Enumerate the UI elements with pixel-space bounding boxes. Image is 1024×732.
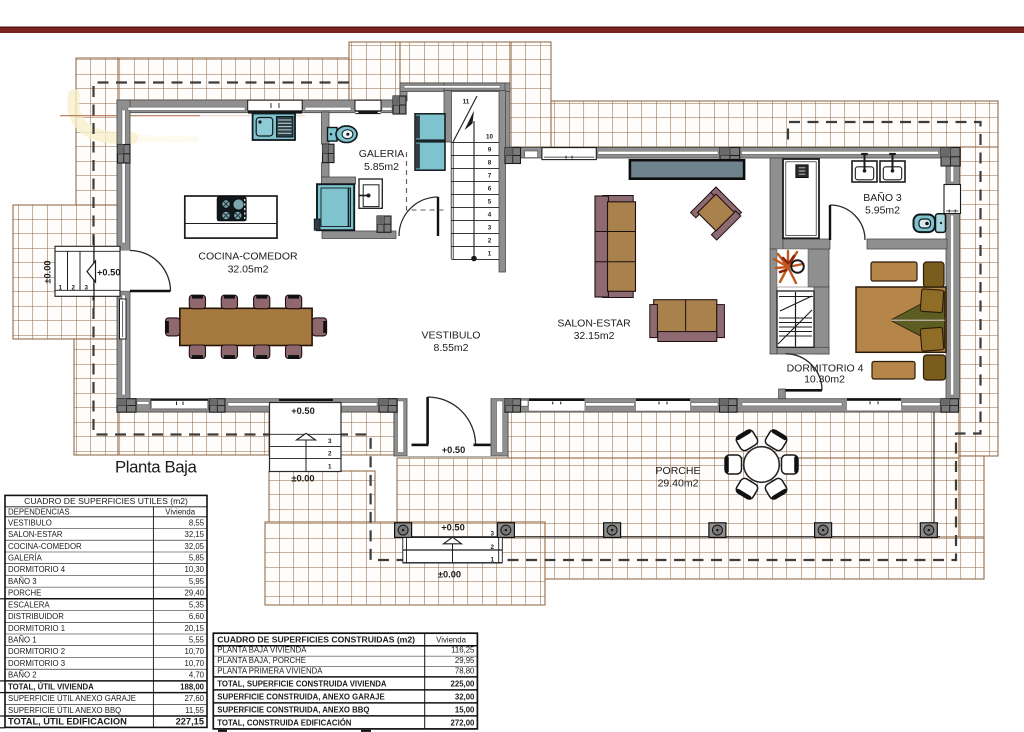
svg-text:7: 7: [488, 173, 492, 180]
svg-text:6,60: 6,60: [189, 612, 205, 621]
svg-text:COCINA-COMEDOR: COCINA-COMEDOR: [8, 542, 82, 551]
svg-text:78,80: 78,80: [455, 667, 475, 676]
svg-text:32,00: 32,00: [455, 693, 475, 702]
svg-text:20,15: 20,15: [184, 624, 204, 633]
svg-text:CUADRO DE SUPERFICIES CONSTRUI: CUADRO DE SUPERFICIES CONSTRUIDAS (m2): [217, 634, 415, 644]
svg-text:2: 2: [491, 544, 495, 551]
svg-text:6: 6: [488, 186, 492, 193]
svg-text:PLANTA BAJA, PORCHE: PLANTA BAJA, PORCHE: [217, 656, 306, 665]
svg-text:TOTAL, CONSTRUIDA EDIFICACIÓN: TOTAL, CONSTRUIDA EDIFICACIÓN: [217, 719, 351, 728]
svg-text:5.95m2: 5.95m2: [865, 205, 900, 217]
svg-text:8.55m2: 8.55m2: [433, 342, 468, 354]
svg-text:DORMITORIO 3: DORMITORIO 3: [8, 659, 65, 668]
svg-text:27,60: 27,60: [184, 694, 204, 703]
svg-text:SUPERFICIE CONSTRUIDA, ANEXO B: SUPERFICIE CONSTRUIDA, ANEXO BBQ: [217, 706, 369, 715]
svg-text:227,15: 227,15: [176, 717, 204, 727]
svg-text:4,70: 4,70: [189, 671, 205, 680]
svg-text:5.85m2: 5.85m2: [364, 161, 399, 173]
svg-text:±0.00: ±0.00: [43, 260, 53, 283]
svg-text:TOTAL, SUPERFICIE CONSTRUIDA V: TOTAL, SUPERFICIE CONSTRUIDA VIVIENDA: [217, 680, 387, 689]
svg-text:5: 5: [488, 199, 492, 206]
svg-text:TOTAL, ÚTIL VIVIENDA: TOTAL, ÚTIL VIVIENDA: [8, 682, 94, 691]
svg-text:32,15: 32,15: [184, 530, 204, 539]
svg-text:+0.50: +0.50: [291, 406, 315, 416]
svg-text:10: 10: [486, 134, 494, 141]
svg-text:3: 3: [488, 225, 492, 232]
svg-text:1: 1: [328, 464, 332, 471]
svg-text:PLANTA PRIMERA VIVIENDA: PLANTA PRIMERA VIVIENDA: [217, 667, 323, 676]
svg-text:Vivienda: Vivienda: [165, 507, 195, 516]
svg-text:SALON-ESTAR: SALON-ESTAR: [557, 318, 631, 330]
svg-text:2: 2: [72, 285, 76, 292]
svg-text:10,30: 10,30: [184, 565, 204, 574]
svg-text:272,00: 272,00: [451, 719, 476, 728]
svg-text:PORCHE: PORCHE: [8, 589, 41, 598]
svg-text:188,00: 188,00: [180, 682, 205, 691]
svg-text:ESCALERA: ESCALERA: [8, 600, 50, 609]
svg-text:PORCHE: PORCHE: [656, 465, 701, 477]
svg-text:10.30m2: 10.30m2: [804, 374, 845, 386]
svg-text:4: 4: [488, 212, 492, 219]
svg-text:3: 3: [85, 285, 89, 292]
svg-text:VESTIBULO: VESTIBULO: [8, 518, 52, 527]
svg-text:8,55: 8,55: [189, 518, 205, 527]
svg-text:225,00: 225,00: [451, 680, 476, 689]
svg-text:GALERIA: GALERIA: [359, 148, 405, 160]
svg-text:116,25: 116,25: [451, 646, 475, 655]
svg-text:29.40m2: 29.40m2: [658, 478, 699, 490]
svg-text:10,70: 10,70: [184, 659, 204, 668]
svg-text:2: 2: [328, 451, 332, 458]
svg-text:9: 9: [488, 147, 492, 154]
svg-text:Vivienda: Vivienda: [436, 635, 466, 644]
svg-text:BAÑO 2: BAÑO 2: [8, 671, 37, 680]
svg-text:29,95: 29,95: [455, 656, 475, 665]
svg-text:DISTRIBUIDOR: DISTRIBUIDOR: [8, 612, 64, 621]
svg-text:VESTIBULO: VESTIBULO: [422, 330, 481, 342]
svg-text:BAÑO 3: BAÑO 3: [8, 577, 37, 586]
svg-text:+0.50: +0.50: [97, 268, 121, 278]
svg-text:5,85: 5,85: [189, 554, 205, 563]
svg-text:SUPERFICIE CONSTRUIDA, ANEXO G: SUPERFICIE CONSTRUIDA, ANEXO GARAJE: [217, 693, 384, 702]
svg-text:11: 11: [463, 99, 470, 106]
svg-text:3: 3: [328, 438, 332, 445]
svg-text:±0.00: ±0.00: [438, 570, 461, 580]
svg-text:32,05: 32,05: [184, 542, 204, 551]
svg-text:10,70: 10,70: [184, 647, 204, 656]
svg-text:11,55: 11,55: [185, 706, 205, 715]
svg-text:COCINA-COMEDOR: COCINA-COMEDOR: [198, 251, 298, 263]
svg-text:15,00: 15,00: [455, 706, 475, 715]
svg-text:DORMITORIO 1: DORMITORIO 1: [8, 624, 65, 633]
svg-text:±0.00: ±0.00: [291, 474, 314, 484]
svg-text:32.05m2: 32.05m2: [228, 264, 269, 276]
svg-text:29,40: 29,40: [184, 589, 204, 598]
svg-text:GALERÍA: GALERÍA: [8, 554, 43, 563]
svg-text:DEPENDENCIAS: DEPENDENCIAS: [8, 507, 70, 516]
svg-text:SUPERFICIE ÚTIL ANEXO BBQ: SUPERFICIE ÚTIL ANEXO BBQ: [8, 706, 121, 715]
svg-text:DORMITORIO 4: DORMITORIO 4: [8, 565, 66, 574]
svg-text:SALON-ESTAR: SALON-ESTAR: [8, 530, 63, 539]
svg-text:BAÑO 3: BAÑO 3: [863, 191, 902, 204]
svg-text:2: 2: [488, 238, 492, 245]
svg-text:5,55: 5,55: [189, 636, 205, 645]
svg-text:Planta Baja: Planta Baja: [115, 458, 197, 477]
svg-text:8: 8: [488, 160, 492, 167]
svg-text:5,95: 5,95: [189, 577, 205, 586]
svg-text:SUPERFICIE ÚTIL ANEXO GARAJE: SUPERFICIE ÚTIL ANEXO GARAJE: [8, 694, 136, 703]
svg-text:TOTAL, ÚTIL EDIFICACION: TOTAL, ÚTIL EDIFICACION: [8, 716, 127, 727]
svg-text:DORMITORIO 2: DORMITORIO 2: [8, 647, 65, 656]
svg-text:+0.50: +0.50: [442, 445, 466, 455]
svg-text:PLANTA BAJA VIVIENDA: PLANTA BAJA VIVIENDA: [217, 646, 307, 655]
svg-text:1: 1: [488, 251, 492, 258]
svg-text:1: 1: [59, 285, 63, 292]
svg-text:BAÑO 1: BAÑO 1: [8, 636, 37, 645]
svg-text:+0.50: +0.50: [441, 523, 465, 533]
svg-text:32.15m2: 32.15m2: [574, 330, 615, 342]
svg-text:1: 1: [491, 557, 495, 564]
svg-text:CUADRO DE SUPERFICIES UTILES (: CUADRO DE SUPERFICIES UTILES (m2): [24, 496, 188, 506]
svg-text:5,35: 5,35: [189, 600, 205, 609]
